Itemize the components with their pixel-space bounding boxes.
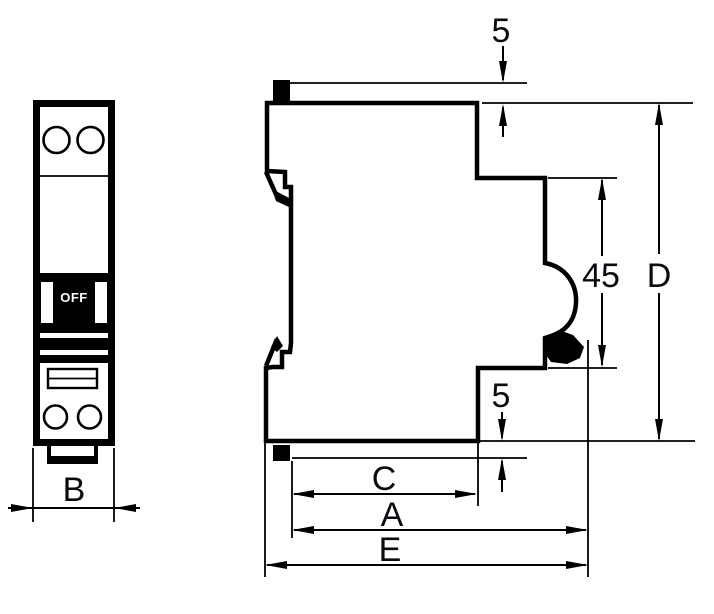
terminal-screw-top-left	[44, 127, 70, 153]
arrow-down-icon	[499, 61, 507, 83]
upper-wedge-fill	[272, 189, 291, 208]
arrow-left-icon	[265, 561, 287, 569]
arrow-right-icon	[11, 504, 33, 512]
arrow-up-icon	[499, 104, 507, 126]
rating-label-window	[48, 369, 97, 388]
stripe-black-2	[40, 355, 108, 363]
arrow-right-icon	[566, 561, 588, 569]
bottom-clip-block	[273, 445, 290, 461]
drawing-canvas: 5 45 D 5	[0, 0, 714, 614]
breaker-dimension-drawing: 5 45 D 5	[0, 0, 714, 614]
arrow-left-icon	[292, 490, 314, 498]
front-view: OFF B	[8, 100, 140, 522]
arrow-left-icon	[114, 504, 136, 512]
arrow-up-icon	[498, 458, 506, 480]
dimension-front-width-label: B	[63, 471, 86, 509]
dimension-upper-height: 45	[582, 178, 622, 367]
dimension-mid-depth-label: A	[381, 496, 404, 534]
stripe-black-1	[40, 338, 108, 350]
toggle-slot-left	[41, 282, 53, 323]
terminal-screw-bottom-left	[44, 406, 67, 429]
din-clip-tab-face	[51, 446, 94, 456]
arrow-down-icon	[598, 345, 606, 367]
terminal-screw-bottom-right	[78, 406, 101, 429]
arrow-up-icon	[598, 178, 606, 200]
top-terminal-block	[273, 80, 290, 103]
dimension-mid-depth: A	[292, 496, 588, 534]
arrow-left-icon	[292, 526, 314, 534]
arrow-right-icon	[455, 490, 477, 498]
toggle-switch: OFF	[40, 273, 108, 363]
arrow-down-icon	[498, 419, 506, 441]
dimension-bottom-step: 5	[492, 377, 511, 492]
din-rail-catch	[544, 330, 584, 364]
dimension-overall-height-label: D	[647, 257, 672, 295]
dimension-overall-depth-label: E	[379, 531, 402, 569]
dimension-top-step-label: 5	[492, 12, 511, 50]
arrow-up-icon	[655, 103, 663, 125]
dimension-inner-depth: C	[292, 460, 477, 498]
dimension-top-step: 5	[492, 12, 511, 137]
switch-off-label: OFF	[60, 290, 88, 305]
dimension-overall-depth: E	[265, 531, 588, 569]
toggle-slot-right	[95, 282, 107, 323]
terminal-screw-top-right	[78, 127, 104, 153]
stripe-white-2	[40, 350, 108, 355]
dimension-bottom-step-label: 5	[492, 377, 511, 415]
arrow-right-icon	[566, 526, 588, 534]
dimension-inner-depth-label: C	[372, 460, 397, 498]
dimension-overall-height: D	[642, 103, 676, 441]
side-body-outline	[266, 103, 576, 441]
arrow-down-icon	[655, 419, 663, 441]
stripe-white-1	[40, 333, 108, 338]
side-view: 5 45 D 5	[265, 12, 695, 577]
dimension-upper-height-label: 45	[582, 257, 620, 295]
